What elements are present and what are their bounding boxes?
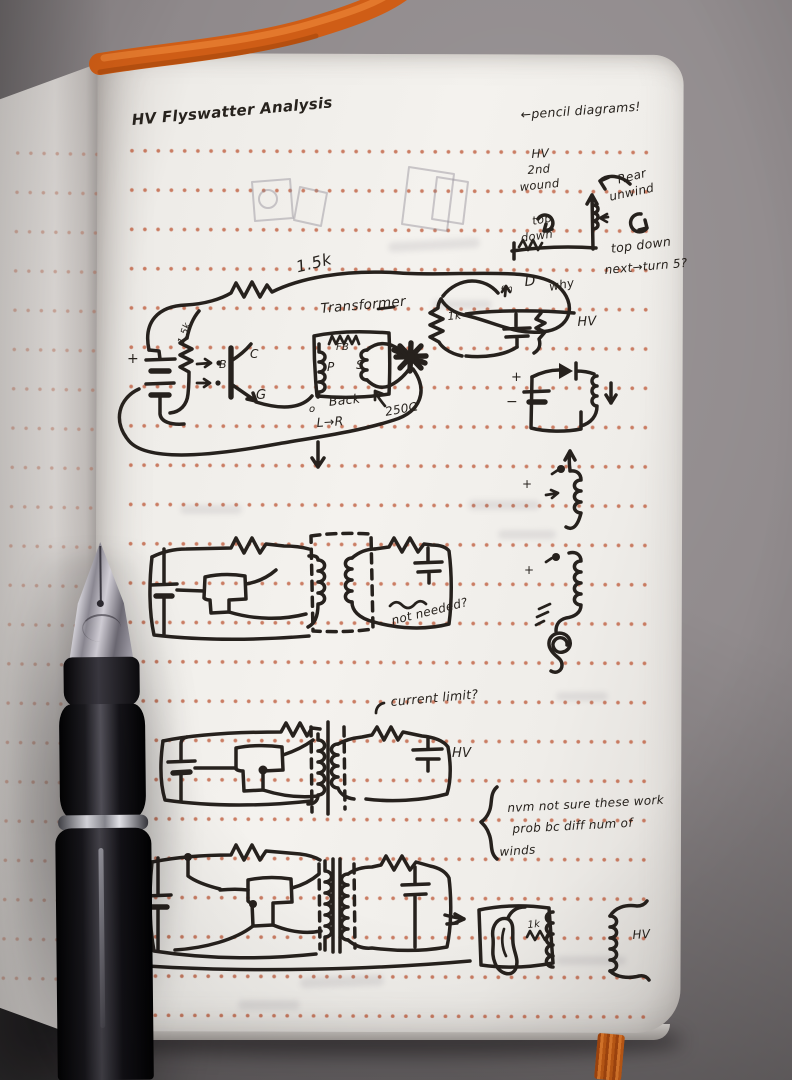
bleed-through-mark bbox=[556, 956, 626, 965]
label-fm: fm bbox=[500, 284, 514, 296]
fountain-pen bbox=[35, 537, 176, 1080]
label-resistor-1k: 1k bbox=[447, 309, 462, 323]
bleed-through-mark bbox=[432, 300, 492, 309]
label-battery-plus: + bbox=[127, 351, 139, 367]
label-left-right: L→R bbox=[316, 413, 344, 430]
label-d: D bbox=[524, 273, 536, 290]
dot-grid bbox=[122, 131, 653, 1019]
bleed-through-mark bbox=[498, 530, 556, 539]
label-rectifier-minus: − bbox=[506, 394, 518, 410]
label-hv-bottom: HV bbox=[632, 927, 651, 942]
label-secondary: S bbox=[356, 358, 364, 372]
notebook-photo: HV Flyswatter Analysis ←pencil diagrams!… bbox=[0, 0, 792, 1080]
nib-breather-hole bbox=[97, 600, 104, 607]
bleed-through-mark bbox=[238, 1000, 300, 1010]
bleed-through-mark bbox=[180, 505, 242, 514]
pen-collar bbox=[63, 657, 140, 708]
label-hv-schematic3: HV bbox=[452, 746, 471, 761]
label-winding-plus1: + bbox=[522, 477, 532, 491]
label-hv-2nd-1: HV bbox=[531, 146, 550, 161]
label-fb-winding: FB bbox=[336, 342, 349, 353]
elastic-band bbox=[594, 1033, 625, 1080]
label-emitter: G bbox=[256, 388, 266, 403]
label-winding-plus2: + bbox=[524, 563, 534, 577]
bleed-through-mark bbox=[556, 692, 608, 701]
label-hv-mid: HV bbox=[577, 314, 597, 330]
label-base: B bbox=[219, 358, 227, 371]
bleed-through-mark bbox=[468, 500, 540, 510]
label-hv-2nd-2: 2nd bbox=[527, 161, 551, 177]
label-resistor-1k-bottom: 1k bbox=[527, 919, 541, 931]
label-collector: C bbox=[250, 347, 259, 361]
label-primary: P bbox=[327, 360, 335, 374]
pen-grip-section bbox=[59, 704, 146, 819]
label-back-o: o bbox=[309, 404, 315, 415]
note-nvm-line3: winds bbox=[499, 842, 536, 858]
label-rectifier-plus: + bbox=[511, 370, 522, 385]
